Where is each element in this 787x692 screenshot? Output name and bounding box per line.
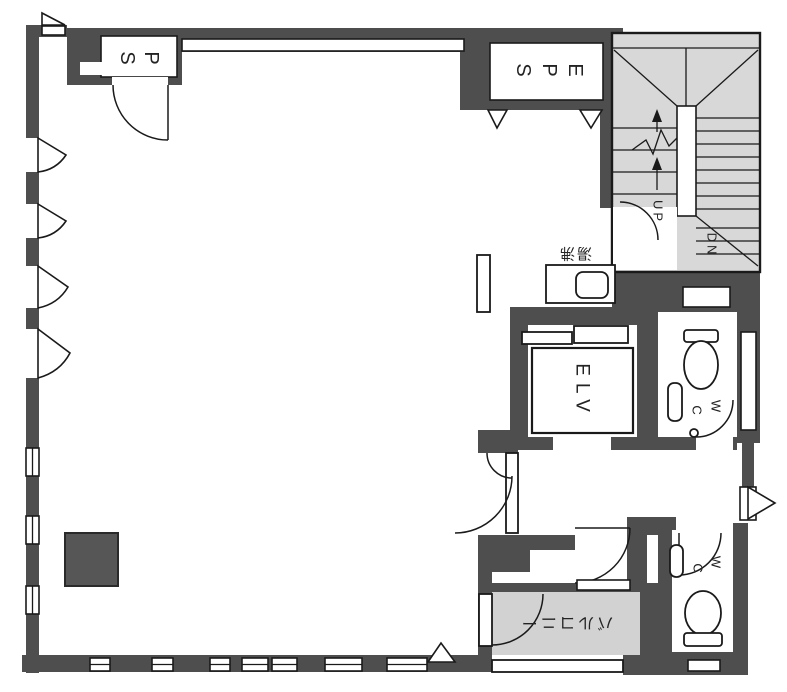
toilet-bowl-lower-icon — [685, 591, 721, 635]
wc-lower-label: C — [691, 563, 706, 572]
kitchenette-partition — [477, 255, 490, 312]
ps-label: S — [116, 51, 138, 64]
wc-lower-window — [688, 660, 720, 671]
stair-center-bar — [677, 106, 696, 216]
balcony-railing — [492, 660, 623, 672]
stairwell — [612, 33, 760, 272]
top-window-strip — [182, 39, 464, 51]
wc-upper-label: W — [709, 400, 724, 413]
elevator-counterweight-right — [574, 326, 628, 343]
elevator-label: ELV — [572, 363, 593, 419]
sliding-window-icon — [26, 448, 39, 614]
elevator-counterweight-left — [522, 332, 572, 344]
wc-upper-basin-icon — [668, 383, 682, 421]
floor-plan: S P S P E ELV UP DN 湯沸 C W C W バルコニー — [0, 0, 787, 692]
vestibule-window — [577, 580, 630, 590]
elevator-door-opening — [553, 437, 611, 450]
hall-door-leaf — [506, 453, 518, 533]
toilet-tank-lower-icon — [684, 633, 722, 646]
eps-label: P — [538, 63, 560, 76]
wc-lower-label: W — [709, 556, 724, 569]
right-window-upper — [741, 332, 756, 430]
eps-label: S — [512, 63, 534, 76]
balcony-door-leaf — [479, 594, 492, 646]
balcony — [479, 592, 640, 672]
duct-niche — [683, 287, 730, 307]
wc-upper-label: C — [690, 405, 705, 414]
floor-plan-drawing: S P S P E ELV UP DN 湯沸 C W C W バルコニー — [0, 0, 787, 692]
eps-label: E — [564, 63, 586, 76]
structural-column — [65, 533, 118, 586]
stair-landing — [613, 207, 677, 270]
balcony-label: バルコニー — [519, 614, 614, 631]
kitchenette-sink-icon — [576, 272, 608, 298]
wc-lower-basin-icon — [670, 545, 683, 577]
stairs-down-label: DN — [705, 233, 720, 258]
ps-label: P — [140, 51, 162, 64]
wc-upper-door-knob — [690, 429, 698, 437]
top-left-window — [42, 26, 65, 35]
toilet-bowl-upper-icon — [684, 341, 718, 389]
stairs-up-label: UP — [651, 200, 666, 224]
kitchenette-label: 湯沸 — [558, 245, 592, 262]
